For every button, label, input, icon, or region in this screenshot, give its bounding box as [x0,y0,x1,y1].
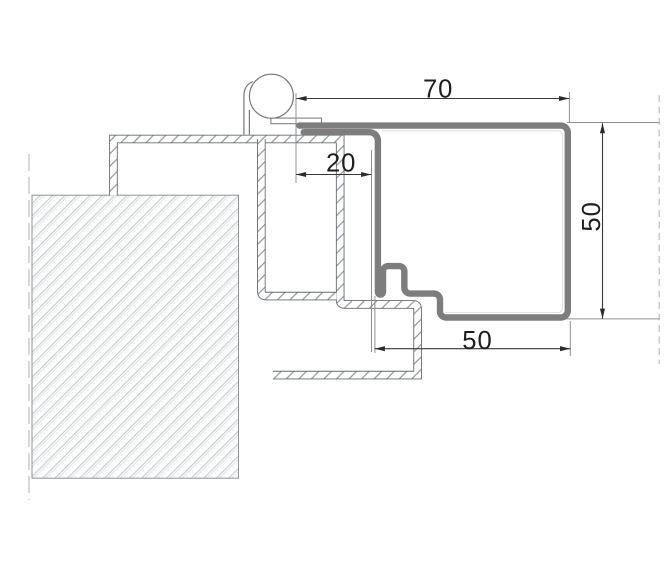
svg-text:70: 70 [423,76,453,104]
svg-text:50: 50 [462,327,492,355]
svg-text:50: 50 [578,201,606,231]
svg-text:20: 20 [326,150,356,178]
